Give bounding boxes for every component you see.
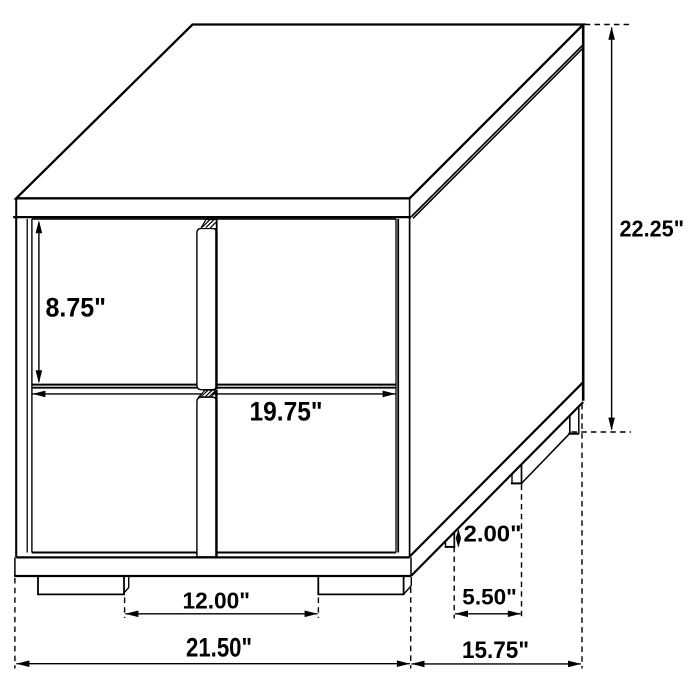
svg-text:21.50": 21.50" [186, 633, 252, 663]
svg-text:12.00": 12.00" [183, 587, 251, 613]
svg-text:15.75": 15.75" [462, 637, 529, 664]
svg-text:19.75": 19.75" [250, 397, 323, 427]
svg-text:22.25": 22.25" [620, 216, 685, 242]
svg-text:5.50": 5.50" [462, 585, 517, 610]
svg-text:8.75": 8.75" [46, 293, 107, 323]
svg-text:2.00": 2.00" [464, 521, 522, 547]
